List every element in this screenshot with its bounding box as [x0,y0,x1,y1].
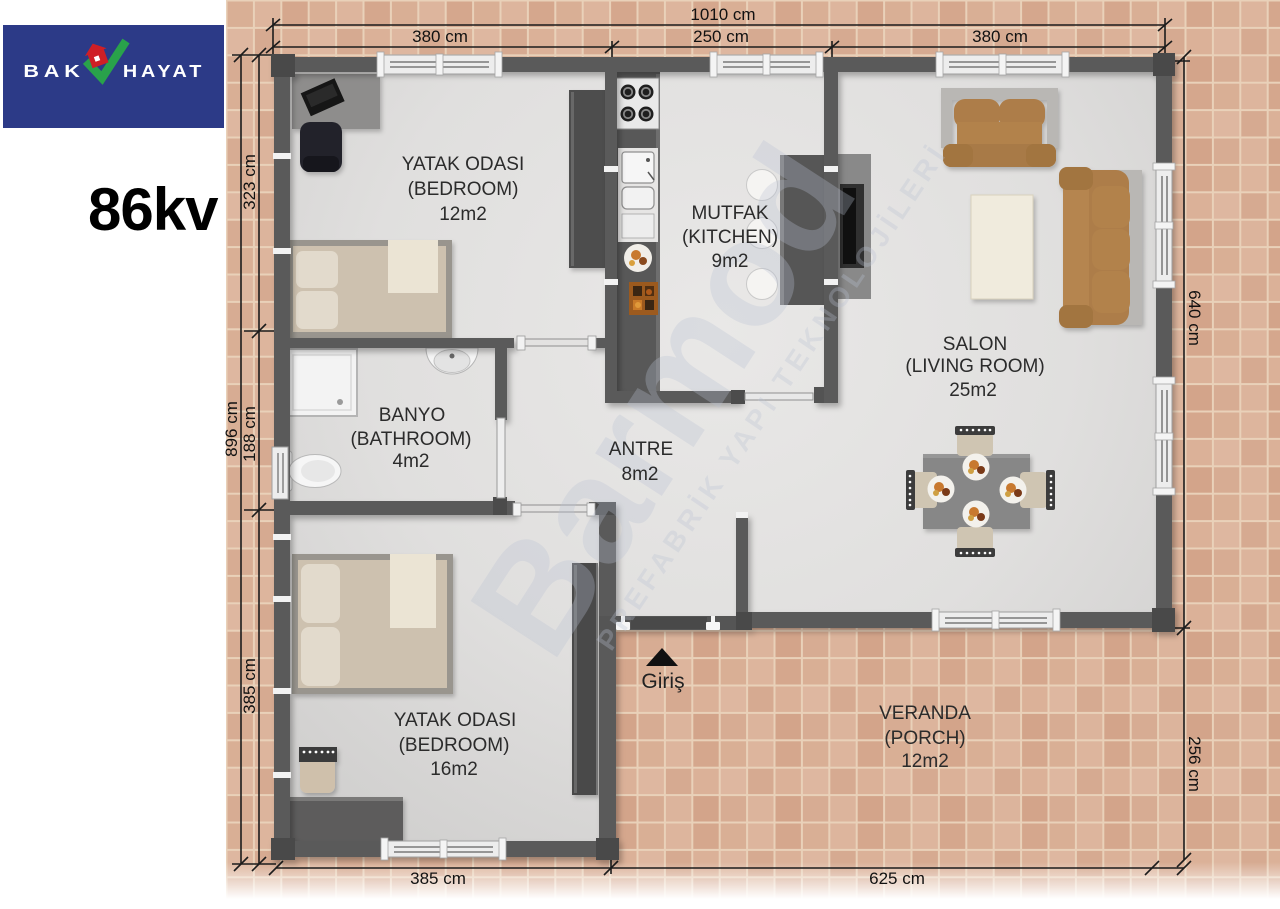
svg-text:BANYO: BANYO [379,405,446,426]
svg-text:(BEDROOM): (BEDROOM) [408,179,519,200]
svg-text:380 cm: 380 cm [412,27,468,46]
svg-text:HAYAT: HAYAT [123,62,205,82]
svg-text:YATAK ODASI: YATAK ODASI [394,710,516,731]
svg-text:250 cm: 250 cm [693,27,749,46]
svg-text:Giriş: Giriş [641,670,684,693]
svg-text:323 cm: 323 cm [240,154,259,210]
svg-text:380 cm: 380 cm [972,27,1028,46]
svg-text:SALON: SALON [943,334,1007,355]
svg-text:9m2: 9m2 [712,251,749,272]
svg-text:25m2: 25m2 [949,380,997,401]
svg-text:YATAK ODASI: YATAK ODASI [402,154,524,175]
svg-text:12m2: 12m2 [439,204,487,225]
svg-text:MUTFAK: MUTFAK [691,203,768,224]
svg-text:188 cm: 188 cm [240,406,259,462]
svg-text:(LIVING ROOM): (LIVING ROOM) [905,356,1044,377]
svg-text:(BEDROOM): (BEDROOM) [399,735,510,756]
svg-text:ANTRE: ANTRE [609,439,673,460]
svg-text:625 cm: 625 cm [869,869,925,888]
svg-text:1010 cm: 1010 cm [690,5,755,24]
svg-text:BAK: BAK [23,62,84,82]
svg-text:86kv: 86kv [88,176,219,243]
svg-text:640 cm: 640 cm [1185,290,1204,346]
svg-text:12m2: 12m2 [901,751,949,772]
svg-text:(BATHROOM): (BATHROOM) [350,429,471,450]
svg-text:385 cm: 385 cm [410,869,466,888]
svg-text:8m2: 8m2 [622,464,659,485]
svg-text:896 cm: 896 cm [222,401,241,457]
svg-text:4m2: 4m2 [393,451,430,472]
svg-text:16m2: 16m2 [430,759,478,780]
svg-text:385 cm: 385 cm [240,658,259,714]
svg-text:(KITCHEN): (KITCHEN) [682,227,778,248]
svg-text:(PORCH): (PORCH) [884,728,965,749]
svg-text:256 cm: 256 cm [1185,736,1204,792]
svg-text:VERANDA: VERANDA [879,703,971,724]
